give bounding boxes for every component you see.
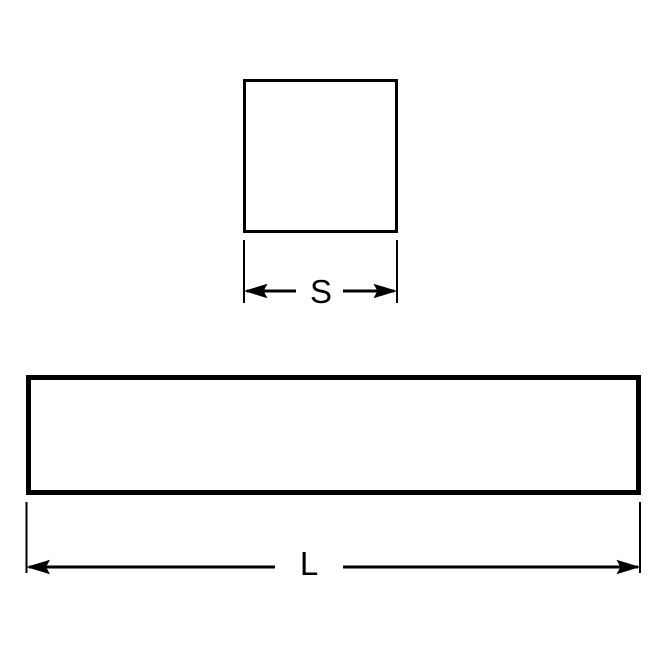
- l-arrowhead-right-icon: [618, 561, 639, 574]
- diagram-canvas: S L: [0, 0, 670, 670]
- l-arrowhead-left-icon: [28, 561, 49, 574]
- s-arrowhead-right-icon: [375, 285, 396, 298]
- s-arrowhead-left-icon: [246, 285, 267, 298]
- l-dimension-label: L: [300, 545, 318, 582]
- s-dimension-label: S: [310, 273, 332, 310]
- length-bar-outline: [29, 378, 639, 493]
- square-cross-section-outline: [245, 81, 397, 232]
- keystock-technical-drawing: S L: [0, 0, 670, 670]
